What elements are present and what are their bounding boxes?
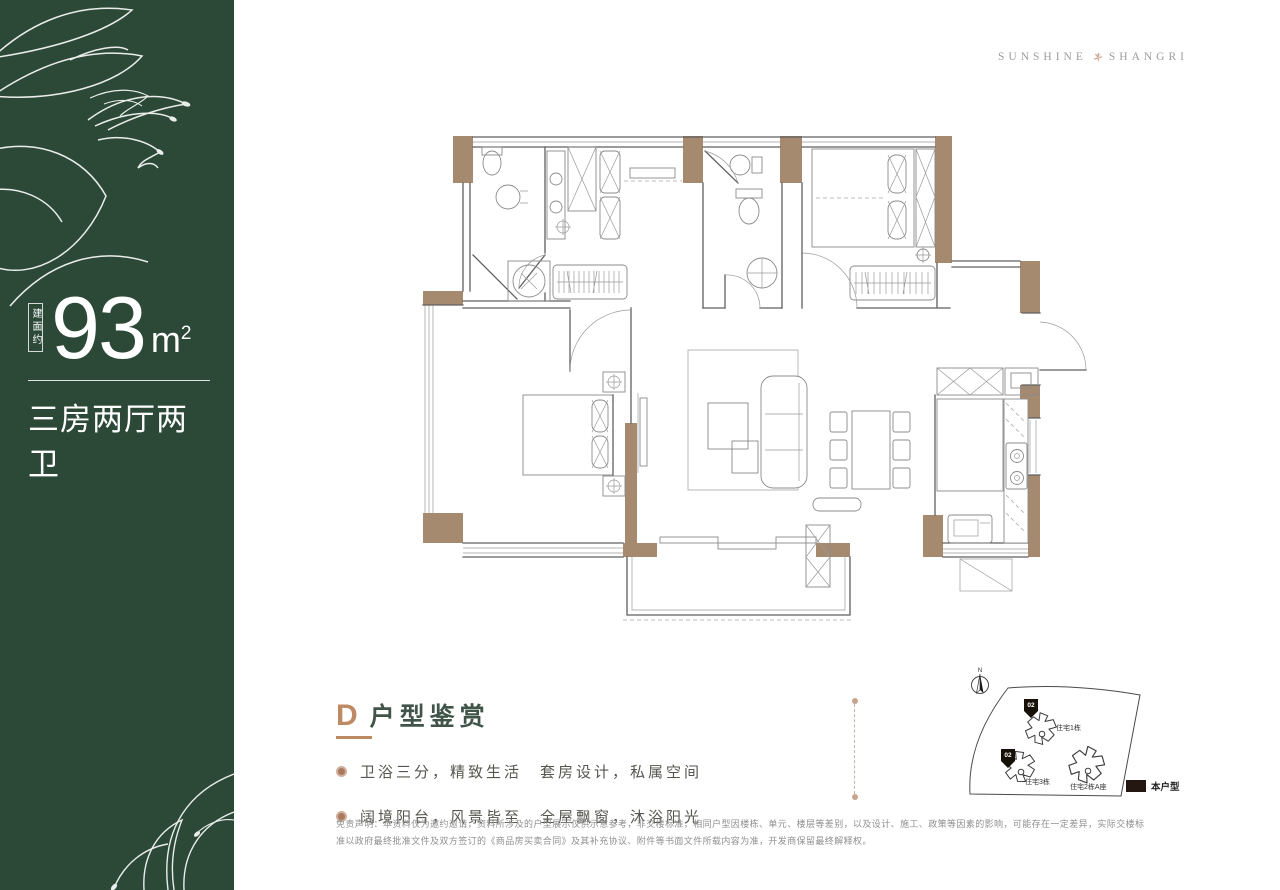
area-unit-exponent: 2 xyxy=(181,323,192,344)
building-1: 02 住宅1栋 xyxy=(1024,699,1081,746)
feature-letter: D xyxy=(336,699,358,733)
closet-laundry xyxy=(508,147,682,301)
brand-name-right: SHANGRI xyxy=(1109,51,1188,63)
poster: 建面约 93 m2 三房两厅两卫 SUNSHINE xyxy=(0,0,1280,890)
svg-text:02: 02 xyxy=(1004,752,1012,759)
layout-type-label: 三房两厅两卫 xyxy=(28,394,218,484)
feature-section: D 户型鉴赏 卫浴三分，精致生活 套房设计，私属空间 阔境阳台，风景皆至 全屋飘… xyxy=(336,697,836,827)
area-unit-letter: m xyxy=(151,319,181,360)
area-unit: m2 xyxy=(151,322,192,358)
compass-icon: N xyxy=(972,668,989,694)
walls xyxy=(423,136,1040,557)
living-dining xyxy=(688,350,910,511)
brand-name-left: SUNSHINE xyxy=(998,51,1087,63)
balcony xyxy=(623,525,1012,620)
feature-title-text: 户型鉴赏 xyxy=(370,697,490,733)
area-value: 93 xyxy=(51,292,145,364)
flower-line-art-bottom xyxy=(84,760,234,890)
feature-title: D 户型鉴赏 xyxy=(336,697,836,733)
bullet-text: 卫浴三分，精致生活 套房设计，私属空间 xyxy=(360,761,702,782)
svg-text:02: 02 xyxy=(1027,702,1035,709)
sidebar-panel: 建面约 93 m2 三房两厅两卫 xyxy=(0,0,234,890)
bathroom-2 xyxy=(705,151,777,308)
entry-door xyxy=(1040,322,1086,370)
legend-swatch xyxy=(1126,780,1146,792)
bullet-dot-icon xyxy=(336,766,347,777)
bullet-item: 卫浴三分，精致生活 套房设计，私属空间 xyxy=(336,761,836,782)
bathroom-1 xyxy=(473,147,565,299)
legend-label: 本户型 xyxy=(1151,781,1180,793)
area-block: 建面约 93 m2 三房两厅两卫 xyxy=(28,292,218,484)
disclaimer-text: 免责声明：本资料仅为邀约邀请，资料所涉及的户型展示仅供示意参考，非交楼标准，相同… xyxy=(336,816,1146,850)
siteplan-legend: 本户型 xyxy=(1126,780,1180,793)
svg-text:住宅3栋: 住宅3栋 xyxy=(1025,777,1050,786)
building-3: 02 住宅3栋 xyxy=(1001,749,1050,786)
building-2a: 住宅2栋A座 xyxy=(1066,743,1108,791)
bedroom-2 xyxy=(802,149,935,308)
brand-flower-icon xyxy=(1093,34,1103,80)
separator-dot xyxy=(852,698,858,704)
brand-logo: SUNSHINE SHANGRI xyxy=(998,32,1188,82)
site-boundary xyxy=(970,687,1140,796)
floorplan-drawing xyxy=(420,123,1090,628)
area-row: 建面约 93 m2 xyxy=(28,292,218,364)
divider-line xyxy=(28,380,210,381)
dashed-separator xyxy=(854,704,855,794)
svg-text:N: N xyxy=(978,668,982,674)
svg-text:住宅1栋: 住宅1栋 xyxy=(1056,723,1081,732)
feature-underline xyxy=(336,736,372,739)
svg-text:住宅2栋A座: 住宅2栋A座 xyxy=(1070,782,1107,791)
area-prefix-tag: 建面约 xyxy=(28,303,43,352)
siteplan-map: N 02 住宅1栋 02 住宅3栋 住宅2栋A座 本户型 xyxy=(963,666,1197,808)
separator-dot xyxy=(852,794,858,800)
